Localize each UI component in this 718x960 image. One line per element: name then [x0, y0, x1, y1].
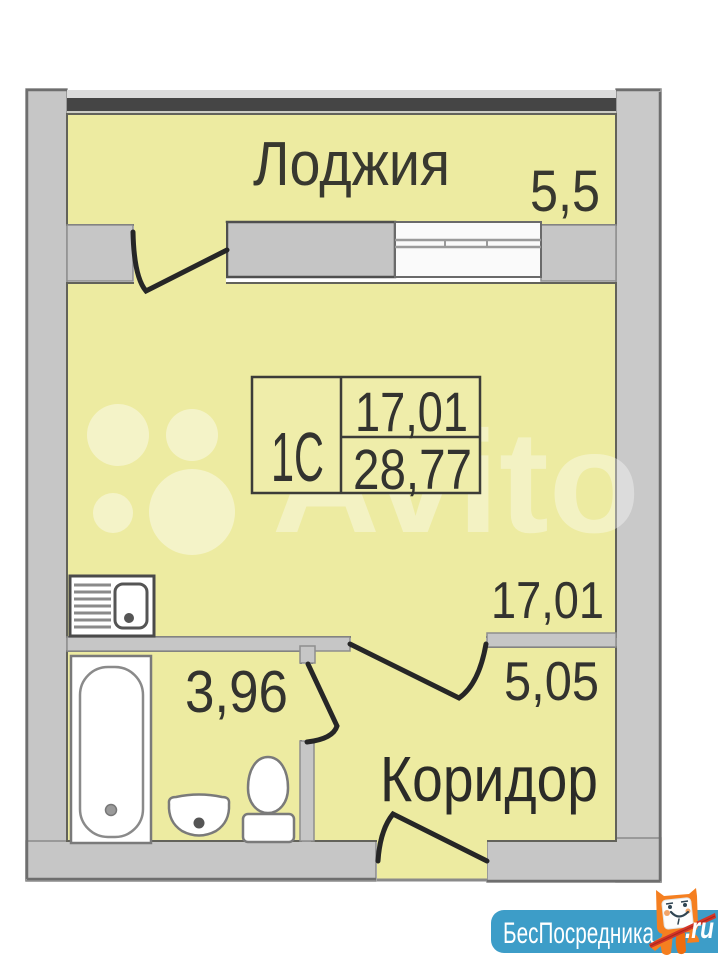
- svg-text:Коридор: Коридор: [380, 743, 598, 815]
- svg-text:.ru: .ru: [685, 912, 714, 945]
- svg-text:3,96: 3,96: [185, 659, 288, 725]
- svg-text:17,01: 17,01: [491, 572, 604, 630]
- svg-text:17,01: 17,01: [355, 380, 468, 443]
- svg-text:Лоджия: Лоджия: [253, 130, 450, 199]
- svg-text:5,5: 5,5: [530, 159, 600, 224]
- svg-text:28,77: 28,77: [353, 438, 472, 502]
- svg-text:5,05: 5,05: [504, 650, 599, 712]
- svg-text:1C: 1C: [271, 418, 324, 496]
- svg-text:БесПосредника: БесПосредника: [503, 917, 654, 950]
